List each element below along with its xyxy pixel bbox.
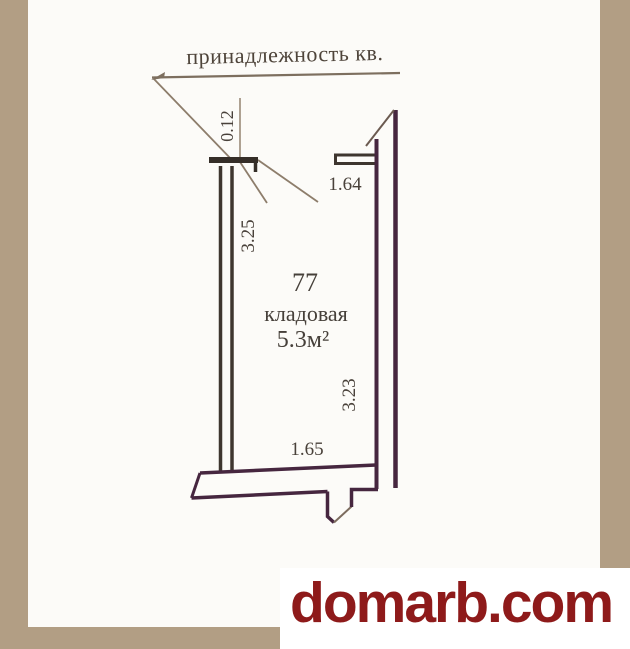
leader-prong-left [240,162,267,203]
bottom-notch-right-side [352,490,379,508]
dim-top-opening: 1.64 [328,174,362,195]
right-wall-break-line [366,110,394,146]
dim-right-wall: 3.23 [339,378,360,411]
dim-bottom-wall: 1.65 [290,439,323,460]
left-wall [209,160,258,473]
room-name: кладовая [264,301,348,326]
site-watermark: domarb.com [290,570,620,636]
title-underline [152,73,400,78]
leader-prong-right [258,160,318,202]
leader-arrowhead [151,72,165,80]
right-wall [366,110,396,489]
dim-left-wall: 3.25 [238,219,259,252]
bottom-notch-diagonal [334,507,352,523]
bottom-wall-top-edge [200,465,376,473]
bottom-wall-left-tip [192,473,201,498]
scanned-floorplan-image: принадлежность кв. 0.12 3.25 1.64 3.23 1… [0,0,630,649]
bottom-wall-bottom-edge [192,492,328,499]
bottom-notch-left-side [328,492,335,523]
floorplan-drawing: принадлежность кв. 0.12 3.25 1.64 3.23 1… [0,0,630,649]
top-stub-wall [334,154,375,166]
room-area: 5.3м² [277,327,329,353]
dim-wall-thickness: 0.12 [217,110,237,142]
plan-title: принадлежность кв. [186,40,384,69]
room-number: 77 [292,268,318,297]
leader-lines [152,73,400,203]
bottom-wall [192,465,379,523]
